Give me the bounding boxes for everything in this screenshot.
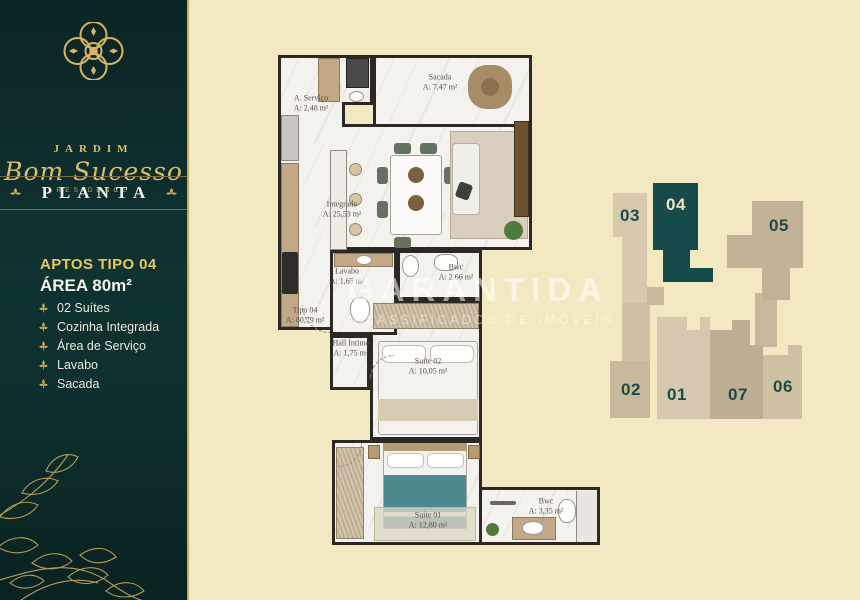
quatrefoil-emblem-icon — [0, 22, 187, 80]
marketing-page: JARDIM Bom Sucesso RESIDENCE PLANTA APTO… — [0, 0, 860, 600]
building-keyplan: 03 04 05 02 01 07 06 — [602, 175, 814, 425]
ornament-leaf-icon — [10, 188, 21, 199]
dining-chair — [377, 167, 388, 184]
leaf-bullet-icon — [38, 302, 49, 313]
kitchen-counter — [281, 163, 299, 327]
plant — [504, 221, 523, 240]
room-label-suite02: Suíte 02A: 10,05 m² — [409, 357, 448, 378]
feature-item: Área de Serviço — [38, 336, 159, 355]
bwc2-sink — [522, 521, 544, 535]
feature-label: Área de Serviço — [57, 339, 146, 353]
feature-label: Lavabo — [57, 358, 98, 372]
dining-chair — [394, 237, 411, 248]
towel-bar — [490, 501, 516, 505]
room-label-integrado: IntegradoA: 25,53 m² — [323, 200, 362, 221]
leaf-bullet-icon — [38, 378, 49, 389]
bar-stool — [349, 163, 362, 176]
feature-item: Cozinha Integrada — [38, 317, 159, 336]
apartment-type-title: APTOS TIPO 04 — [40, 256, 157, 273]
section-title: PLANTA — [35, 183, 153, 203]
kitchen-cabinet — [281, 115, 299, 161]
feature-list: 02 Suítes Cozinha Integrada Área de Serv… — [38, 298, 159, 393]
balcony-table — [468, 65, 512, 109]
room-label-hall: Hall ÍntimoA: 1,75 m² — [332, 339, 369, 360]
cooktop — [282, 252, 298, 294]
feature-label: 02 Suítes — [57, 301, 110, 315]
leaf-bullet-icon — [38, 321, 49, 332]
leaf-bullet-icon — [38, 359, 49, 370]
keyplan-label-04: 04 — [666, 195, 686, 215]
ornament-leaf-icon — [166, 188, 177, 199]
section-title-band: PLANTA — [0, 176, 187, 210]
table-centerpiece — [408, 195, 424, 211]
dining-chair — [377, 201, 388, 218]
washing-machine — [346, 58, 369, 88]
keyplan-label-05: 05 — [769, 216, 789, 236]
feature-label: Sacada — [57, 377, 99, 391]
leaf-bullet-icon — [38, 340, 49, 351]
room-label-bwc1: BwcA: 2,66 m² — [439, 263, 474, 284]
apartment-area: ÁREA 80m² — [40, 276, 157, 296]
tv-panel — [514, 121, 529, 217]
dining-chair — [394, 143, 411, 154]
suite01-headboard — [383, 443, 467, 451]
table-centerpiece — [408, 167, 424, 183]
keyplan-label-03: 03 — [620, 206, 640, 226]
suite01-nightstand — [468, 445, 480, 459]
keyplan-core — [755, 293, 777, 347]
sofa — [452, 143, 480, 215]
dining-chair — [420, 143, 437, 154]
suite01-nightstand — [368, 445, 380, 459]
room-label-bwc2: BwcA: 3,35 m² — [529, 497, 564, 518]
feature-item: 02 Suítes — [38, 298, 159, 317]
keyplan-label-02: 02 — [621, 380, 641, 400]
keyplan-label-06: 06 — [773, 377, 793, 397]
brand-name: JARDIM — [0, 143, 187, 155]
suite02-wardrobe — [373, 303, 479, 329]
foliage-decoration-icon — [0, 435, 189, 600]
lavabo-sink — [356, 255, 372, 265]
feature-item: Lavabo — [38, 355, 159, 374]
bwc2-shower — [576, 491, 597, 542]
room-label-suite01: Suíte 01A: 12,80 m² — [409, 511, 448, 532]
utility-sink — [349, 91, 364, 102]
bwc-sink — [402, 255, 419, 277]
room-label-servico: A. ServiçoA: 2,48 m² — [294, 94, 329, 115]
bwc2-plant — [486, 523, 499, 536]
feature-label: Cozinha Integrada — [57, 320, 159, 334]
brand-logo: JARDIM Bom Sucesso RESIDENCE — [0, 22, 187, 194]
sidebar: JARDIM Bom Sucesso RESIDENCE PLANTA APTO… — [0, 0, 189, 600]
suite01-pillow — [427, 453, 464, 468]
keyplan-label-01: 01 — [667, 385, 687, 405]
bar-stool — [349, 223, 362, 236]
room-label-lavabo: LavaboA: 1,65 m² — [330, 267, 365, 288]
keyplan-label-07: 07 — [728, 385, 748, 405]
suite02-blanket — [378, 399, 478, 421]
floorplan: A. ServiçoA: 2,48 m² SacadaA: 7,47 m² In… — [278, 55, 600, 545]
keyplan-core — [646, 287, 664, 305]
lavabo-toilet — [350, 297, 370, 323]
suite01-pillow — [387, 453, 424, 468]
room-label-sacada: SacadaA: 7,47 m² — [423, 73, 458, 94]
unit-type-label: Tipo 04A: 80,79 m² — [286, 306, 325, 327]
feature-item: Sacada — [38, 374, 159, 393]
